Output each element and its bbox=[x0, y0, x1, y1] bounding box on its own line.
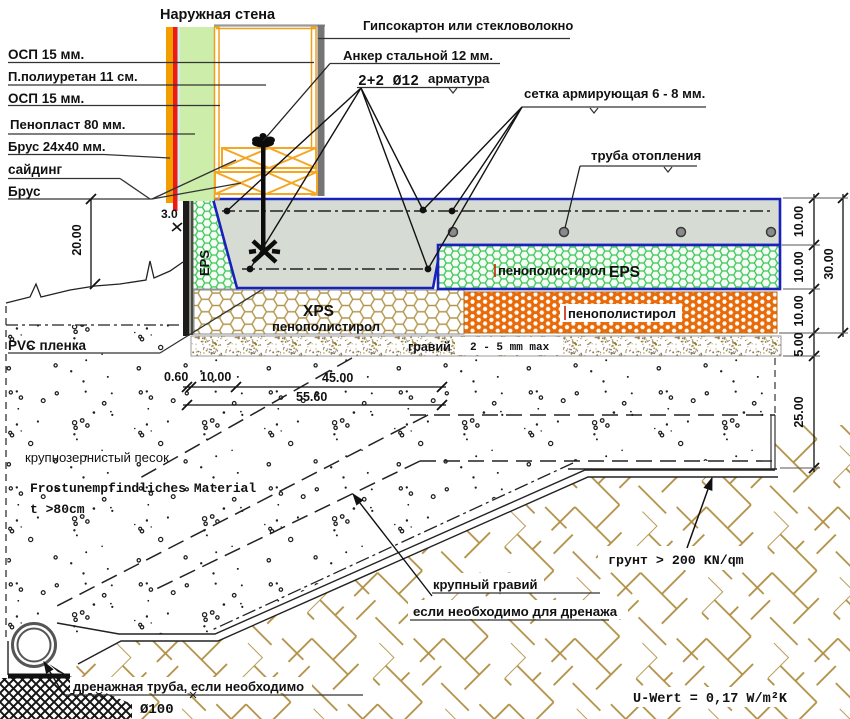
svg-text:25.00: 25.00 bbox=[792, 396, 806, 427]
svg-text:0.60: 0.60 bbox=[164, 370, 188, 384]
svg-text:55.60: 55.60 bbox=[296, 390, 327, 404]
svg-text:грунт > 200 KN/qm: грунт > 200 KN/qm bbox=[608, 553, 744, 568]
svg-text:Frostunempfindliches Material: Frostunempfindliches Material bbox=[30, 481, 256, 496]
svg-text:сайдинг: сайдинг bbox=[8, 162, 63, 177]
svg-text:пенополистирол: пенополистирол bbox=[498, 263, 606, 278]
svg-text:ОСП 15 мм.: ОСП 15 мм. bbox=[8, 47, 84, 62]
svg-text:PVC пленка: PVC пленка bbox=[8, 338, 86, 353]
svg-text:2 - 5 mm max: 2 - 5 mm max bbox=[470, 342, 550, 354]
svg-text:крупный гравий: крупный гравий bbox=[433, 577, 537, 592]
svg-text:пенополистирол: пенополистирол bbox=[568, 306, 676, 321]
svg-text:Ø100: Ø100 bbox=[140, 702, 174, 718]
svg-text:10.00: 10.00 bbox=[792, 295, 806, 326]
svg-text:если необходимо для дренажа: если необходимо для дренажа bbox=[413, 604, 618, 619]
svg-text:крупнозернистый песок: крупнозернистый песок bbox=[25, 450, 169, 465]
svg-text:30.00: 30.00 bbox=[822, 248, 836, 279]
svg-text:t >80cm: t >80cm bbox=[30, 502, 85, 517]
svg-text:Гипсокартон или стекловолокно: Гипсокартон или стекловолокно bbox=[363, 18, 573, 33]
svg-text:арматура: арматура bbox=[428, 71, 490, 86]
svg-text:10.00: 10.00 bbox=[792, 251, 806, 282]
svg-text:дренажная труба, если необходи: дренажная труба, если необходимо bbox=[73, 679, 304, 694]
svg-text:5.00: 5.00 bbox=[792, 332, 806, 356]
svg-text:10.00: 10.00 bbox=[792, 206, 806, 237]
svg-text:EPS: EPS bbox=[197, 250, 212, 276]
svg-text:10.00: 10.00 bbox=[200, 370, 231, 384]
svg-text:пенополистирол: пенополистирол bbox=[272, 319, 380, 334]
svg-text:труба отопления: труба отопления bbox=[591, 148, 701, 163]
svg-text:Пенопласт 80 мм.: Пенопласт 80 мм. bbox=[10, 117, 125, 132]
svg-text:XPS: XPS bbox=[303, 303, 334, 320]
svg-text:ОСП 15 мм.: ОСП 15 мм. bbox=[8, 91, 84, 106]
svg-text:45.00: 45.00 bbox=[322, 371, 353, 385]
svg-text:U-Wert = 0,17 W/m²K: U-Wert = 0,17 W/m²K bbox=[633, 692, 788, 707]
svg-text:П.полиуретан 11 см.: П.полиуретан 11 см. bbox=[8, 69, 138, 84]
svg-text:Наружная стена: Наружная стена bbox=[160, 7, 276, 23]
svg-text:Брус: Брус bbox=[8, 184, 41, 199]
svg-text:гравий: гравий bbox=[408, 340, 451, 354]
svg-text:Анкер стальной 12 мм.: Анкер стальной 12 мм. bbox=[343, 48, 493, 63]
svg-text:20.00: 20.00 bbox=[70, 224, 84, 255]
svg-text:Брус 24x40 мм.: Брус 24x40 мм. bbox=[8, 139, 105, 154]
svg-text:сетка армирующая 6 - 8 мм.: сетка армирующая 6 - 8 мм. bbox=[524, 86, 705, 101]
svg-text:3.0: 3.0 bbox=[161, 207, 178, 221]
svg-text:EPS: EPS bbox=[609, 264, 640, 281]
